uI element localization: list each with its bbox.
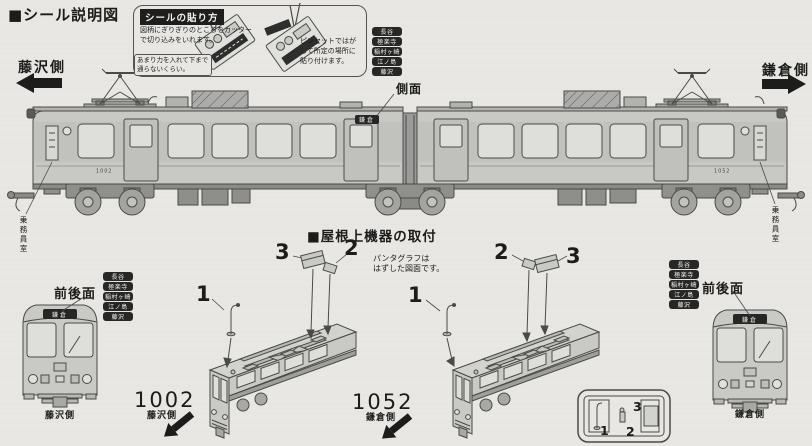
- front-view-kamakura: [713, 310, 787, 412]
- crew-room-label-right: 乗務員室: [770, 206, 781, 244]
- pantograph-right: [656, 69, 728, 107]
- side-destination-sign: 鎌倉: [355, 115, 379, 124]
- kamakura-side-label: 鎌倉側: [762, 60, 810, 80]
- tray-part-1: 1: [600, 423, 609, 438]
- front-destination-sign-left: 鎌倉: [43, 309, 77, 319]
- crew-room-label-left: 乗務員室: [18, 216, 29, 254]
- front-rear-label-right: 前後面: [702, 278, 744, 297]
- front-view-caption-right: 鎌倉側: [720, 407, 780, 420]
- destination-badge: 極楽寺: [669, 270, 699, 279]
- tray-part-3: 3: [633, 399, 642, 414]
- crew-sticker-spot-right: [754, 126, 766, 160]
- howto-step2: ピンセットではがして所定の場所に貼り付けます。: [300, 36, 360, 66]
- part-label-3-right: 3: [566, 244, 581, 268]
- part-label-2-right: 2: [494, 240, 509, 264]
- tray-part-2: 2: [626, 424, 635, 439]
- destination-badge: 長谷: [669, 260, 699, 269]
- pantograph-note-line2: はずした図面です。: [373, 264, 444, 274]
- car-body-number-right: 1052: [714, 168, 730, 174]
- car-body-number-left: 1002: [96, 168, 112, 174]
- destination-badge: 極楽寺: [103, 282, 133, 291]
- destination-badge: 藤沢: [103, 312, 133, 321]
- howto-note: あまり力を入れて下まで通らないくらい。: [134, 54, 212, 76]
- destination-badge: 藤沢: [372, 67, 402, 76]
- crew-sticker-spot-left: [46, 126, 58, 160]
- car-number-1052-side: 鎌倉側: [366, 410, 396, 423]
- destination-badge: 極楽寺: [372, 37, 402, 46]
- howto-step1: 図柄にぎりぎりのところをカッターで切り込みをいれます。: [140, 25, 254, 45]
- front-view-fujisawa: [23, 305, 97, 407]
- part-label-1-right: 1: [408, 283, 423, 307]
- roof-section-title: ■屋根上機器の取付: [307, 225, 437, 245]
- destination-badge: 稲村ヶ崎: [103, 292, 133, 301]
- car-number-1002-side: 藤沢側: [147, 408, 177, 421]
- part-label-1-left: 1: [196, 282, 211, 306]
- part-label-2-left: 2: [344, 236, 359, 260]
- side-sticker-list: 長谷 極楽寺 稲村ヶ崎 江ノ島 藤沢: [372, 27, 402, 77]
- fujisawa-side-label: 藤沢側: [18, 57, 66, 77]
- front-rear-label-left: 前後面: [54, 283, 96, 302]
- pantograph-note-line1: パンタグラフは: [373, 254, 429, 264]
- side-label: 側面: [396, 80, 422, 97]
- destination-badge: 江ノ島: [103, 302, 133, 311]
- front-destination-sign-right: 鎌倉: [733, 314, 767, 324]
- destination-badge: 長谷: [372, 27, 402, 36]
- destination-badge: 長谷: [103, 272, 133, 281]
- destination-badge: 江ノ島: [372, 57, 402, 66]
- front-sticker-list-right: 長谷 極楽寺 稲村ヶ崎 江ノ島 藤沢: [669, 260, 699, 310]
- instruction-sheet: ■シール説明図 シールの貼り方 図柄にぎりぎりのところをカッターで切り込みをいれ…: [0, 0, 812, 446]
- destination-badge: 江ノ島: [669, 290, 699, 299]
- iso-view-1052: [453, 324, 599, 438]
- page-title: ■シール説明図: [8, 4, 119, 25]
- howto-title: シールの貼り方: [140, 9, 224, 25]
- destination-badge: 稲村ヶ崎: [669, 280, 699, 289]
- destination-badge: 稲村ヶ崎: [372, 47, 402, 56]
- destination-badge: 藤沢: [669, 300, 699, 309]
- front-view-caption-left: 藤沢側: [30, 408, 90, 421]
- front-sticker-list-left: 長谷 極楽寺 稲村ヶ崎 江ノ島 藤沢: [103, 272, 133, 322]
- part-label-3-left: 3: [275, 240, 290, 264]
- iso-view-1002: [210, 324, 356, 438]
- line-art: [0, 0, 812, 446]
- parts-tray: [578, 390, 670, 442]
